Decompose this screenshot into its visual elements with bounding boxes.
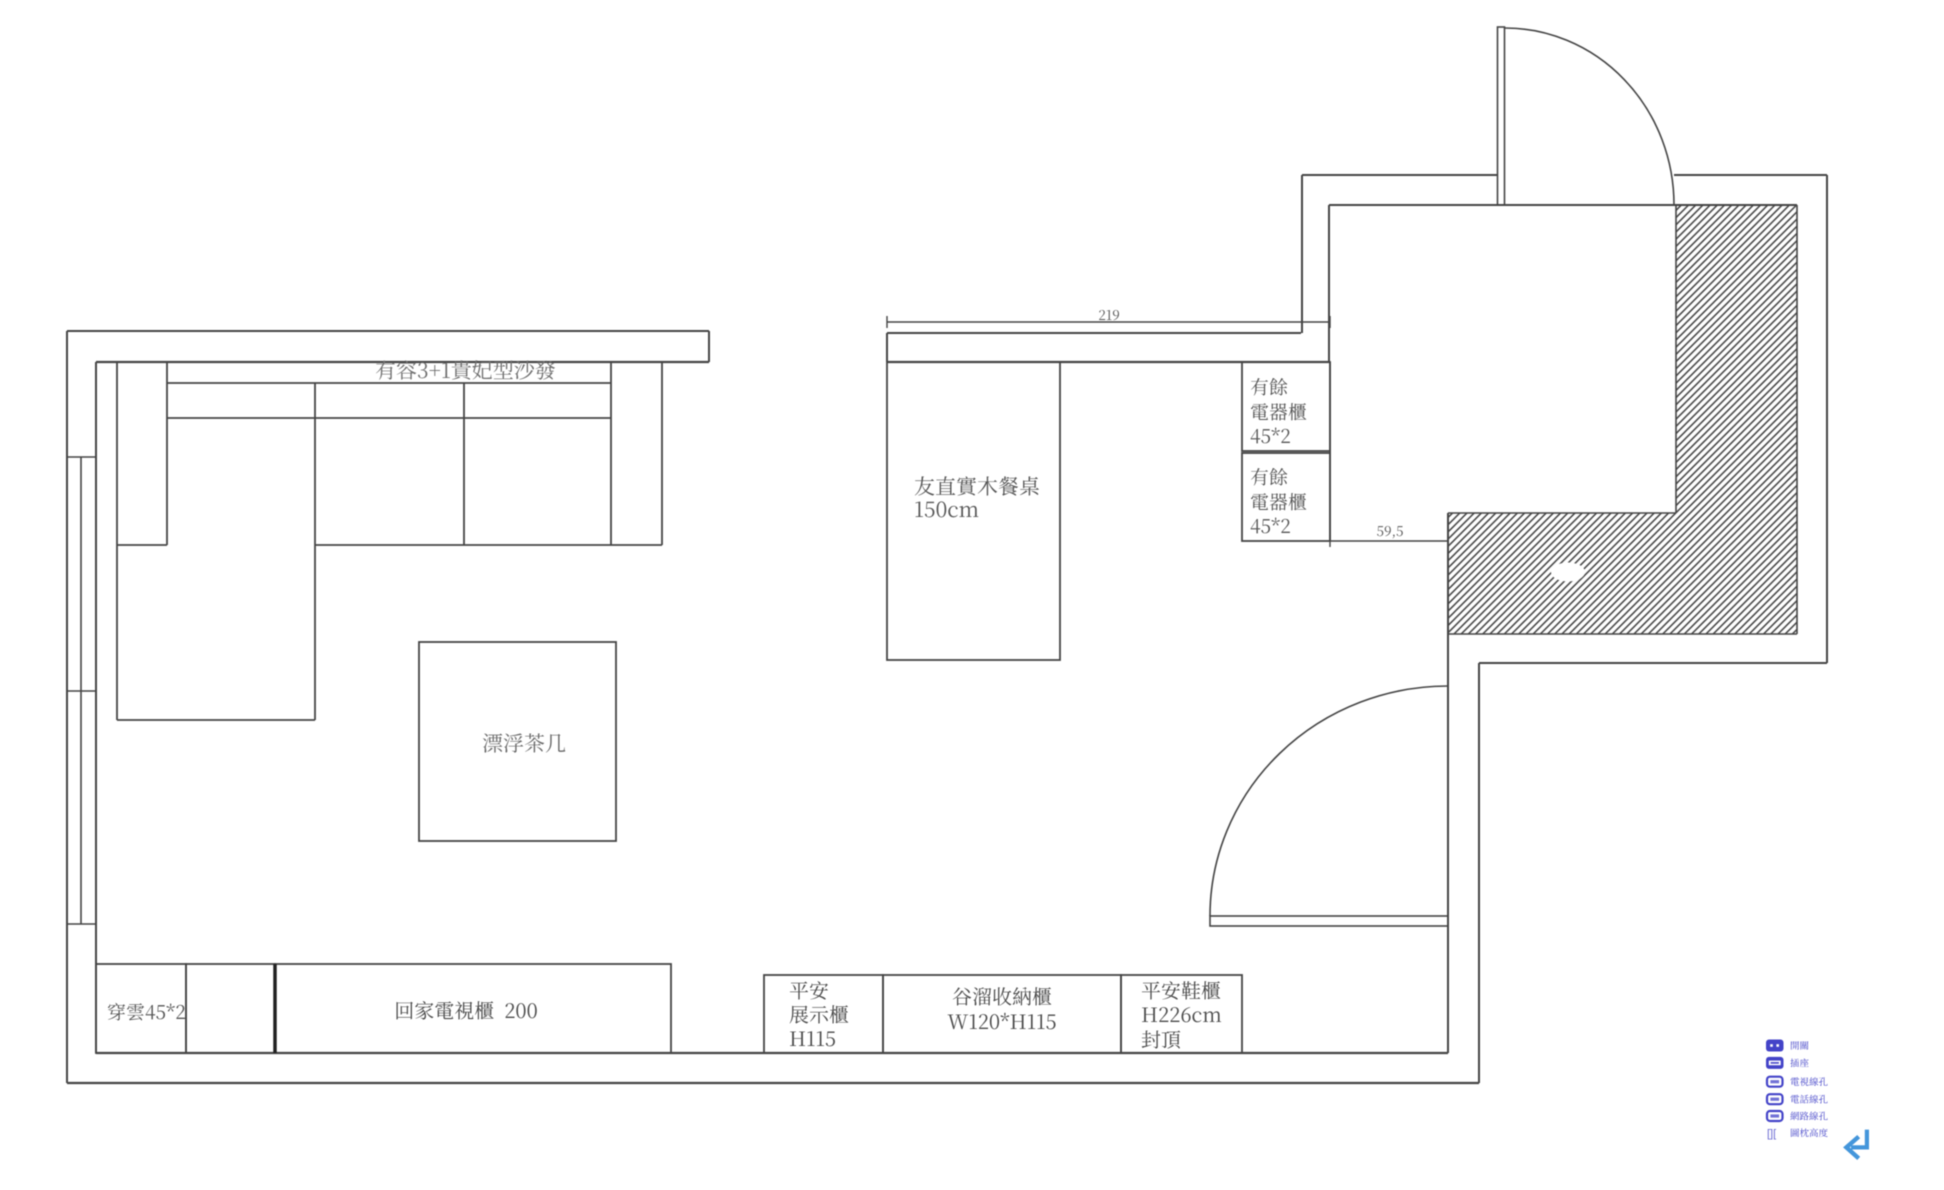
svg-text:[][: [][: [1767, 1128, 1776, 1140]
